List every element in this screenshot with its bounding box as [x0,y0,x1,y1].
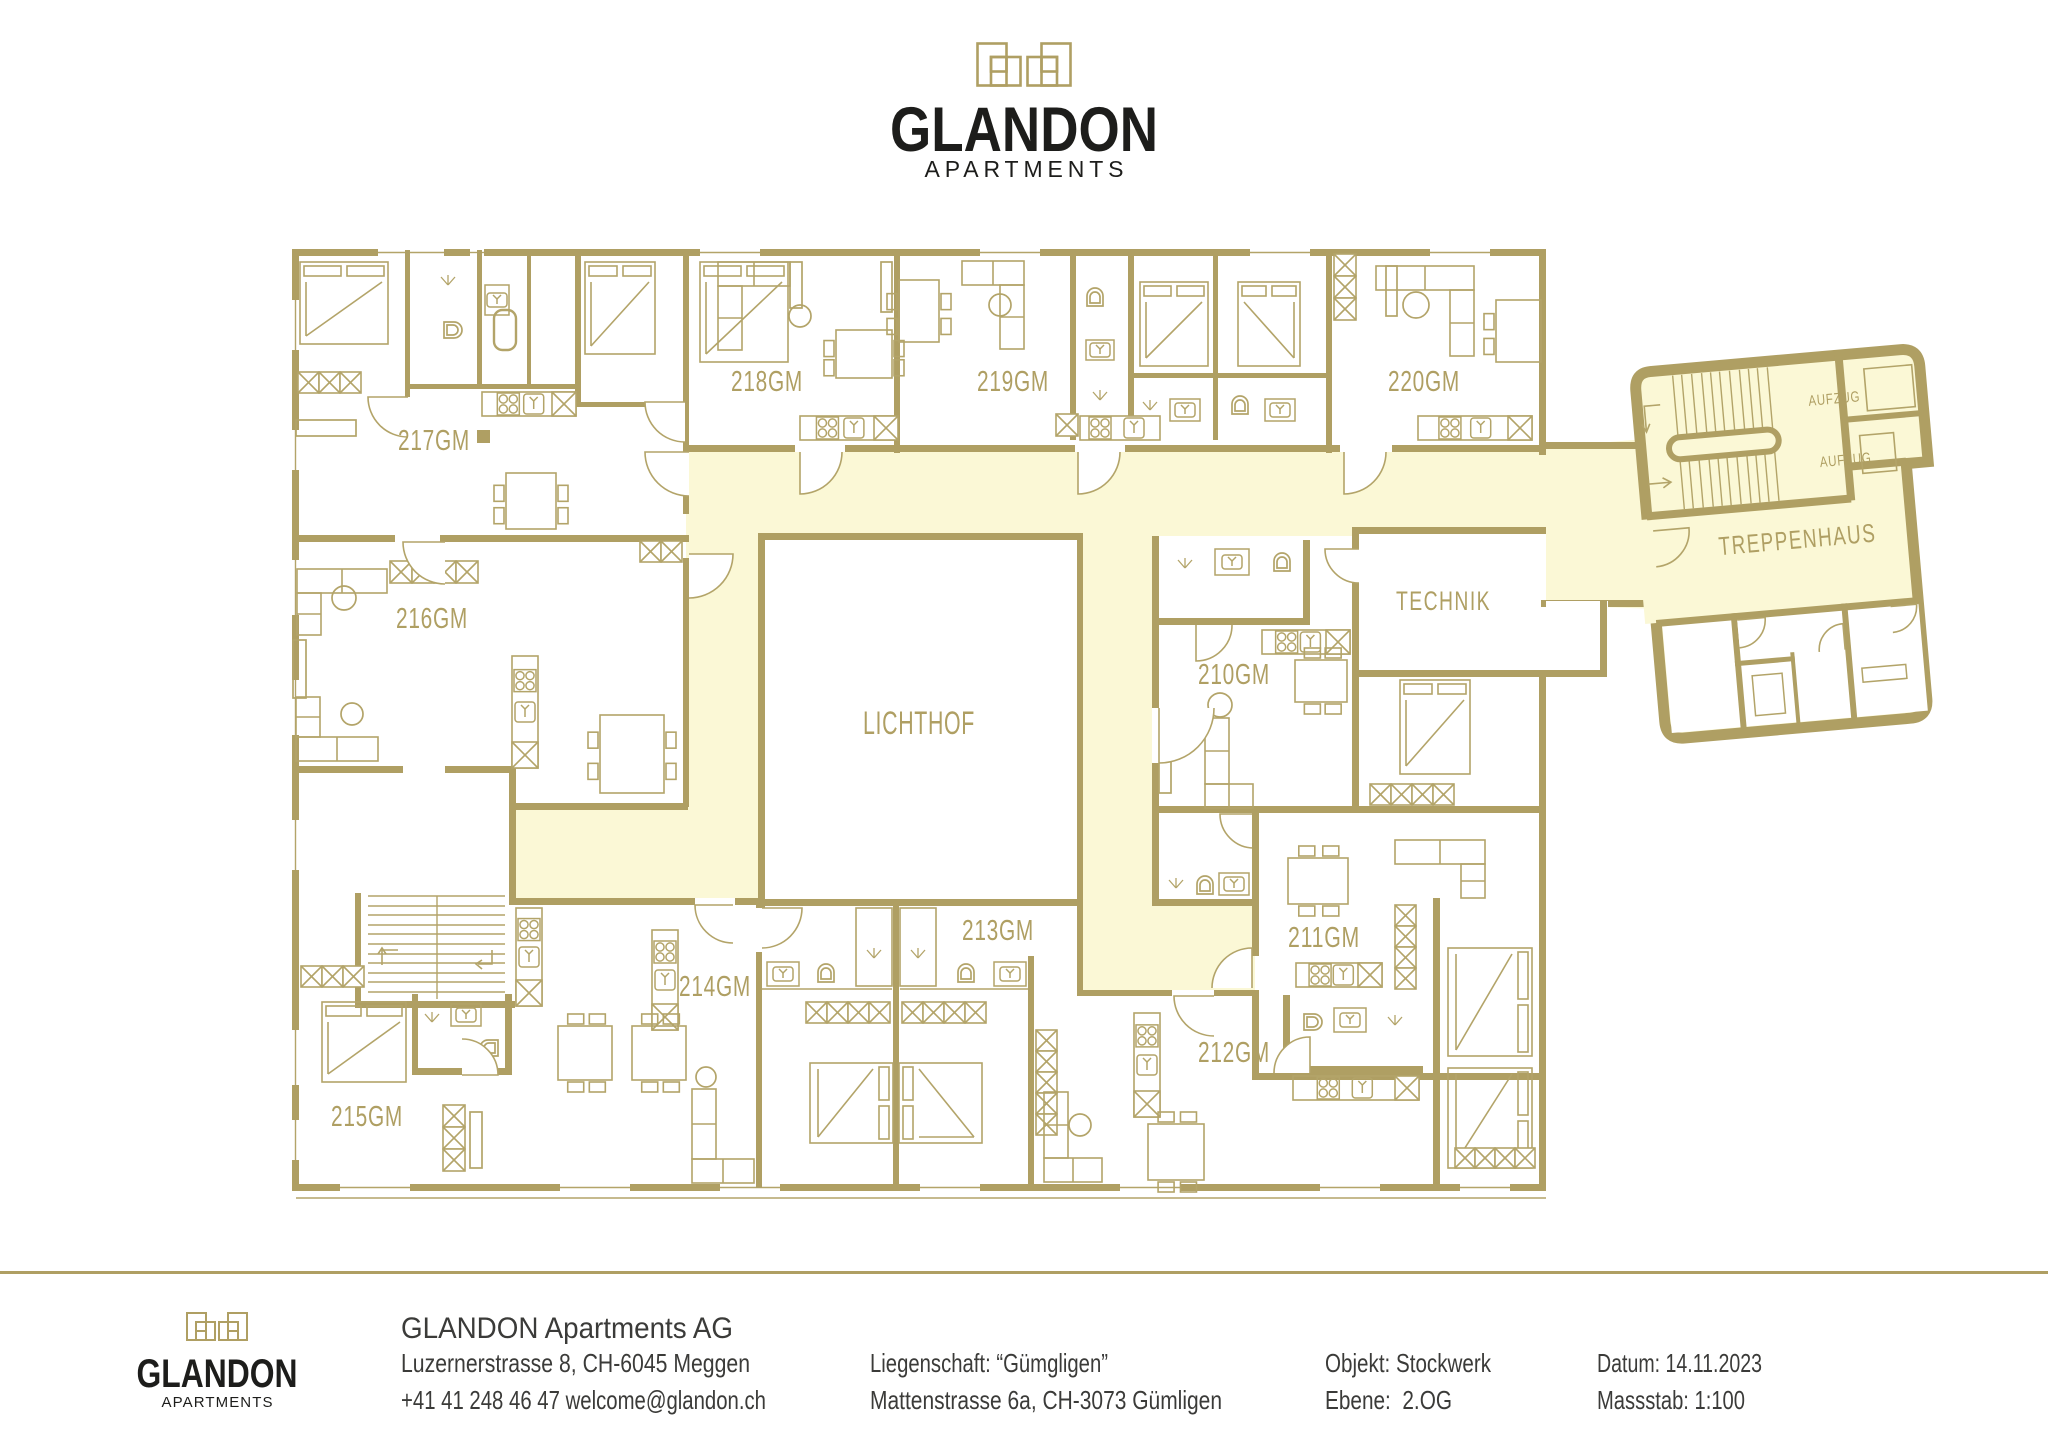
svg-text:213GM: 213GM [962,915,1034,947]
svg-text:Ebene: 2.OG: Ebene: 2.OG [1325,1385,1452,1415]
svg-text:Liegenschaft: “Gümgligen”: Liegenschaft: “Gümgligen” [870,1348,1108,1378]
svg-text:218GM: 218GM [731,366,803,398]
svg-text:APARTMENTS: APARTMENTS [162,1394,273,1411]
svg-text:+41 41 248 46 47 welcome@gland: +41 41 248 46 47 welcome@glandon.ch [401,1385,766,1415]
svg-text:219GM: 219GM [977,366,1049,398]
svg-text:Objekt: Stockwerk: Objekt: Stockwerk [1325,1348,1492,1378]
svg-text:Luzernerstrasse 8, CH-6045 Meg: Luzernerstrasse 8, CH-6045 Meggen [401,1348,750,1378]
svg-text:GLANDON Apartments AG: GLANDON Apartments AG [401,1312,733,1345]
svg-text:Mattenstrasse 6a, CH-3073 Güml: Mattenstrasse 6a, CH-3073 Gümligen [870,1385,1222,1415]
svg-text:APARTMENTS: APARTMENTS [925,156,1124,182]
svg-text:GLANDON: GLANDON [137,1352,298,1396]
svg-text:LICHTHOF: LICHTHOF [863,705,975,741]
svg-text:214GM: 214GM [679,971,751,1003]
svg-text:212GM: 212GM [1198,1037,1270,1069]
svg-text:211GM: 211GM [1288,922,1360,954]
svg-text:Massstab: 1:100: Massstab: 1:100 [1597,1385,1745,1415]
svg-text:217GM: 217GM [398,425,470,457]
svg-text:215GM: 215GM [331,1101,403,1133]
svg-text:GLANDON: GLANDON [890,95,1158,165]
svg-text:210GM: 210GM [1198,659,1270,691]
svg-text:TECHNIK: TECHNIK [1396,586,1491,616]
svg-text:220GM: 220GM [1388,366,1460,398]
svg-text:Datum: 14.11.2023: Datum: 14.11.2023 [1597,1348,1762,1378]
svg-text:216GM: 216GM [396,603,468,635]
